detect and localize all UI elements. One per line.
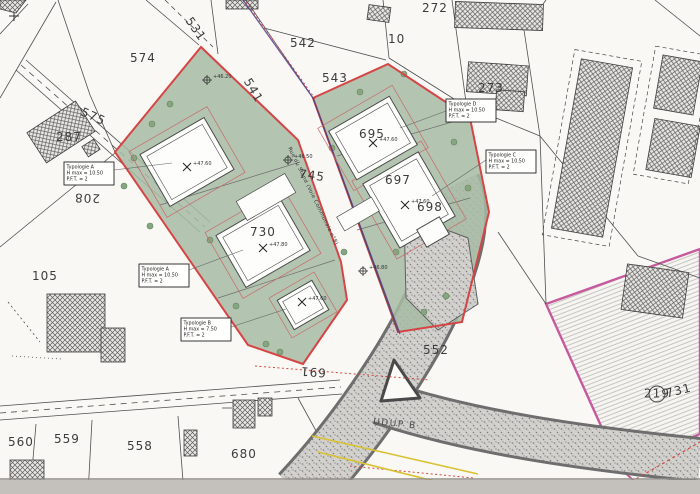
elevation-value: +46.20 <box>213 74 232 80</box>
existing-building-105 <box>47 294 105 352</box>
parcel-label-272: 272 <box>422 1 448 15</box>
typology-pft: P.F.T. = 2 <box>184 333 205 339</box>
parcel-label-208: 208 <box>74 191 100 206</box>
parcel-label-560: 560 <box>8 435 34 449</box>
parcel-label-105: 105 <box>32 269 58 283</box>
parcel-label-697: 697 <box>385 173 411 187</box>
typology-box-c: Typologie C H max = 10.50 P.F.T. = 2 <box>486 150 536 173</box>
typology-title: Typologie B <box>183 321 211 327</box>
apartment-block <box>646 118 700 177</box>
typology-hmax: H max = 10.50 <box>489 159 525 165</box>
existing-building <box>226 0 258 9</box>
parcel-label-680: 680 <box>231 447 257 461</box>
site-plan-map: +46.20 +46.50 +46.80 +47.60 +47.80 +47.6… <box>0 0 700 494</box>
parcel-label-695: 695 <box>359 127 385 141</box>
parcel-label-559: 559 <box>54 432 80 446</box>
existing-building-272 <box>455 1 544 30</box>
typology-title: Typologie C <box>488 153 517 159</box>
elevation-value: +47.80 <box>269 242 288 248</box>
typology-box-a2: Typologie A H max = 10.50 P.F.T. = 2 <box>139 264 189 287</box>
parcel-label-10: 10 <box>388 32 405 46</box>
parcel-label-558: 558 <box>127 439 153 453</box>
parcel-label-287: 287 <box>56 130 82 144</box>
parcel-label-273: 273 <box>478 81 504 95</box>
parcel-label-698: 698 <box>417 200 443 214</box>
existing-building <box>367 5 391 23</box>
typology-title: Typologie D <box>448 102 477 108</box>
typology-pft: P.F.T. = 2 <box>489 165 510 171</box>
typology-pft: P.F.T. = 2 <box>449 114 470 120</box>
typology-hmax: H max = 10.50 <box>449 108 485 114</box>
typology-title: Typologie A <box>66 165 95 171</box>
site-plan-page: +46.20 +46.50 +46.80 +47.60 +47.80 +47.6… <box>0 0 700 494</box>
parcel-label-543: 543 <box>322 71 348 85</box>
typology-pft: P.F.T. = 2 <box>142 279 163 285</box>
typology-box-d: Typologie D H max = 10.50 P.F.T. = 2 <box>446 99 496 122</box>
typology-title: Typologie A <box>141 267 170 273</box>
elevation-value: +47.60 <box>308 296 327 302</box>
existing-building <box>101 328 125 362</box>
typology-hmax: H max = 7.50 <box>184 327 217 333</box>
typology-hmax: H max = 10.50 <box>142 273 178 279</box>
existing-building <box>233 400 255 428</box>
parcel-label-691: 691 <box>300 364 327 380</box>
typology-pft: P.F.T. = 2 <box>67 177 88 183</box>
parcel-label-552: 552 <box>423 343 449 357</box>
parcel-label-730: 730 <box>250 225 276 239</box>
parcel-label-574: 574 <box>130 51 156 65</box>
elevation-value: +46.80 <box>369 265 388 271</box>
elevation-value: +47.60 <box>193 161 212 167</box>
scan-edge-band <box>0 480 700 494</box>
typology-box-a1: Typologie A H max = 10.50 P.F.T. = 2 <box>64 162 114 185</box>
parcel-label-542: 542 <box>290 36 316 50</box>
typology-box-b: Typologie B H max = 7.50 P.F.T. = 2 <box>181 318 231 341</box>
existing-building <box>258 398 272 416</box>
typology-hmax: H max = 10.50 <box>67 171 103 177</box>
existing-building <box>621 264 689 318</box>
existing-building <box>184 430 197 456</box>
